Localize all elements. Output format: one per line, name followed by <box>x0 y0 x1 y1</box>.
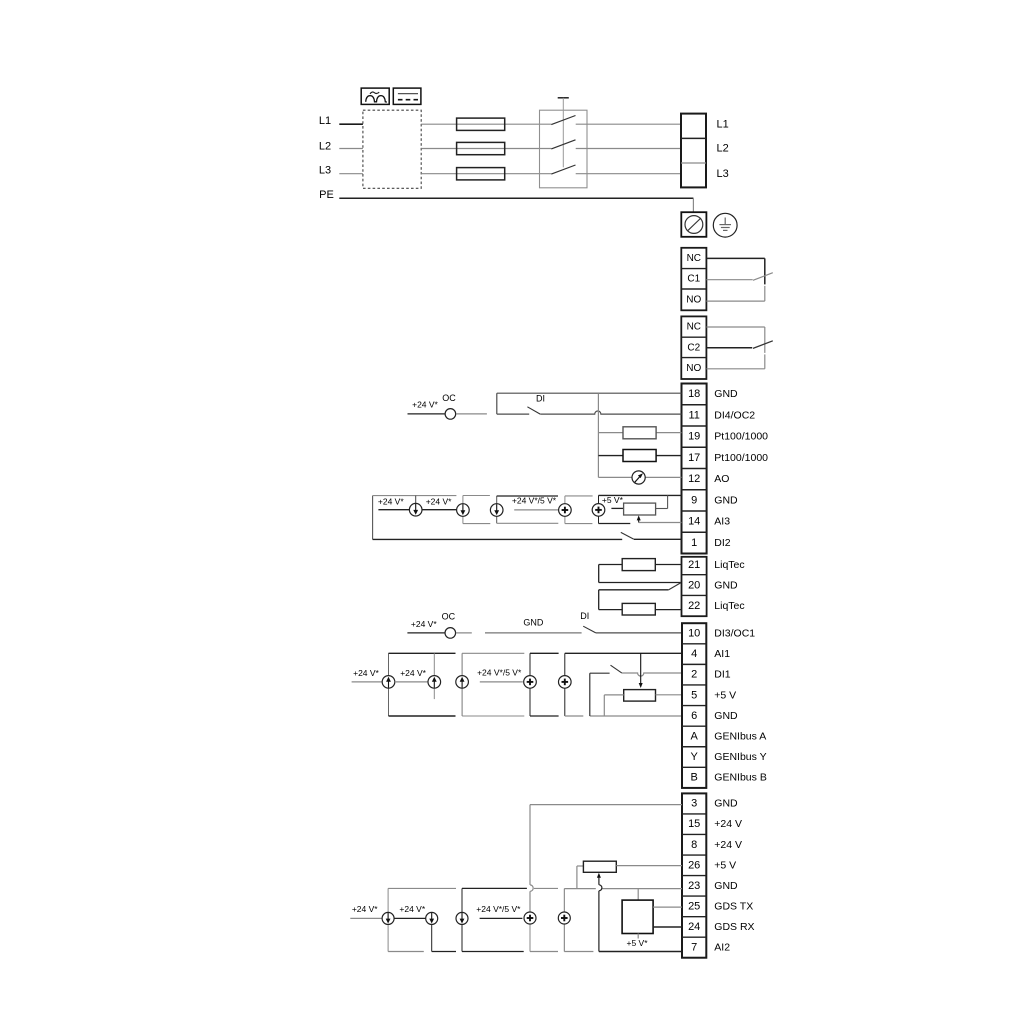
svg-text:DI2: DI2 <box>714 537 731 549</box>
svg-text:AO: AO <box>714 473 729 485</box>
svg-text:C1: C1 <box>687 274 700 285</box>
svg-text:GND: GND <box>714 494 738 506</box>
svg-text:24: 24 <box>688 921 700 933</box>
svg-text:L3: L3 <box>319 165 331 177</box>
svg-text:GND: GND <box>714 579 738 591</box>
svg-text:+5 V*: +5 V* <box>602 495 624 505</box>
svg-text:Pt100/1000: Pt100/1000 <box>714 452 768 464</box>
svg-text:19: 19 <box>688 431 700 443</box>
svg-text:+24 V: +24 V <box>714 818 742 830</box>
svg-text:22: 22 <box>688 600 700 612</box>
svg-text:L2: L2 <box>717 143 729 155</box>
svg-text:18: 18 <box>688 388 700 400</box>
svg-text:DI3/OC1: DI3/OC1 <box>714 627 755 639</box>
svg-text:4: 4 <box>691 648 697 660</box>
svg-text:+24 V*: +24 V* <box>353 668 379 678</box>
svg-text:+5 V: +5 V <box>714 859 736 871</box>
svg-text:OC: OC <box>442 393 456 403</box>
svg-text:23: 23 <box>688 880 700 892</box>
svg-text:7: 7 <box>691 941 697 953</box>
svg-text:L3: L3 <box>717 168 729 180</box>
svg-text:+24 V*: +24 V* <box>400 668 426 678</box>
svg-text:+24 V*/5 V*: +24 V*/5 V* <box>476 904 521 914</box>
svg-text:DI4/OC2: DI4/OC2 <box>714 409 755 421</box>
svg-text:L1: L1 <box>319 115 331 127</box>
svg-text:25: 25 <box>688 900 700 912</box>
svg-text:B: B <box>691 772 698 784</box>
svg-text:GND: GND <box>714 798 738 810</box>
svg-text:21: 21 <box>688 559 700 571</box>
svg-text:GENIbus B: GENIbus B <box>714 772 767 784</box>
svg-text:GDS RX: GDS RX <box>714 921 754 933</box>
svg-text:A: A <box>691 730 699 742</box>
svg-text:+24 V: +24 V <box>714 839 742 851</box>
svg-text:20: 20 <box>688 579 700 591</box>
svg-text:C2: C2 <box>687 342 700 353</box>
svg-text:+5 V: +5 V <box>714 689 736 701</box>
svg-text:NO: NO <box>686 294 701 305</box>
svg-text:17: 17 <box>688 452 700 464</box>
svg-text:3: 3 <box>691 798 697 810</box>
svg-text:6: 6 <box>691 710 697 722</box>
svg-text:+24 V*/5 V*: +24 V*/5 V* <box>477 667 522 677</box>
svg-text:+24 V*: +24 V* <box>411 619 437 629</box>
svg-text:GND: GND <box>714 388 738 400</box>
svg-text:Y: Y <box>691 751 699 763</box>
svg-text:5: 5 <box>691 689 697 701</box>
svg-text:LiqTec: LiqTec <box>714 559 744 571</box>
svg-text:GND: GND <box>714 880 738 892</box>
svg-text:GND: GND <box>523 617 544 627</box>
svg-text:+24 V*: +24 V* <box>352 904 378 914</box>
svg-text:9: 9 <box>691 494 697 506</box>
svg-text:AI1: AI1 <box>714 648 730 660</box>
svg-text:NO: NO <box>686 363 701 374</box>
svg-text:AI2: AI2 <box>714 941 730 953</box>
svg-text:+24 V*: +24 V* <box>378 497 404 507</box>
svg-text:12: 12 <box>688 473 700 485</box>
svg-text:DI: DI <box>536 393 545 403</box>
svg-text:GDS TX: GDS TX <box>714 900 753 912</box>
svg-text:+5 V*: +5 V* <box>626 938 648 948</box>
svg-text:DI1: DI1 <box>714 669 731 681</box>
svg-text:14: 14 <box>688 516 700 528</box>
svg-text:OC: OC <box>442 611 456 621</box>
svg-text:L2: L2 <box>319 140 331 152</box>
svg-text:8: 8 <box>691 839 697 851</box>
svg-text:L1: L1 <box>717 118 729 130</box>
svg-text:15: 15 <box>688 818 700 830</box>
svg-text:Pt100/1000: Pt100/1000 <box>714 431 768 443</box>
svg-text:+24 V*: +24 V* <box>412 399 438 409</box>
svg-text:+24 V*: +24 V* <box>426 497 452 507</box>
svg-text:NC: NC <box>687 253 701 264</box>
svg-text:1: 1 <box>691 537 697 549</box>
svg-text:DI: DI <box>580 611 589 621</box>
svg-text:GENIbus Y: GENIbus Y <box>714 751 766 763</box>
svg-text:GENIbus A: GENIbus A <box>714 730 766 742</box>
svg-text:GND: GND <box>714 710 738 722</box>
svg-text:+24 V*: +24 V* <box>399 904 425 914</box>
svg-text:11: 11 <box>688 409 699 421</box>
svg-text:26: 26 <box>688 859 700 871</box>
svg-text:AI3: AI3 <box>714 516 730 528</box>
svg-text:LiqTec: LiqTec <box>714 600 744 612</box>
svg-text:NC: NC <box>687 322 701 333</box>
svg-text:+24 V*/5 V*: +24 V*/5 V* <box>512 495 557 505</box>
svg-text:10: 10 <box>688 627 700 639</box>
svg-text:PE: PE <box>319 189 334 201</box>
svg-text:2: 2 <box>691 669 697 681</box>
